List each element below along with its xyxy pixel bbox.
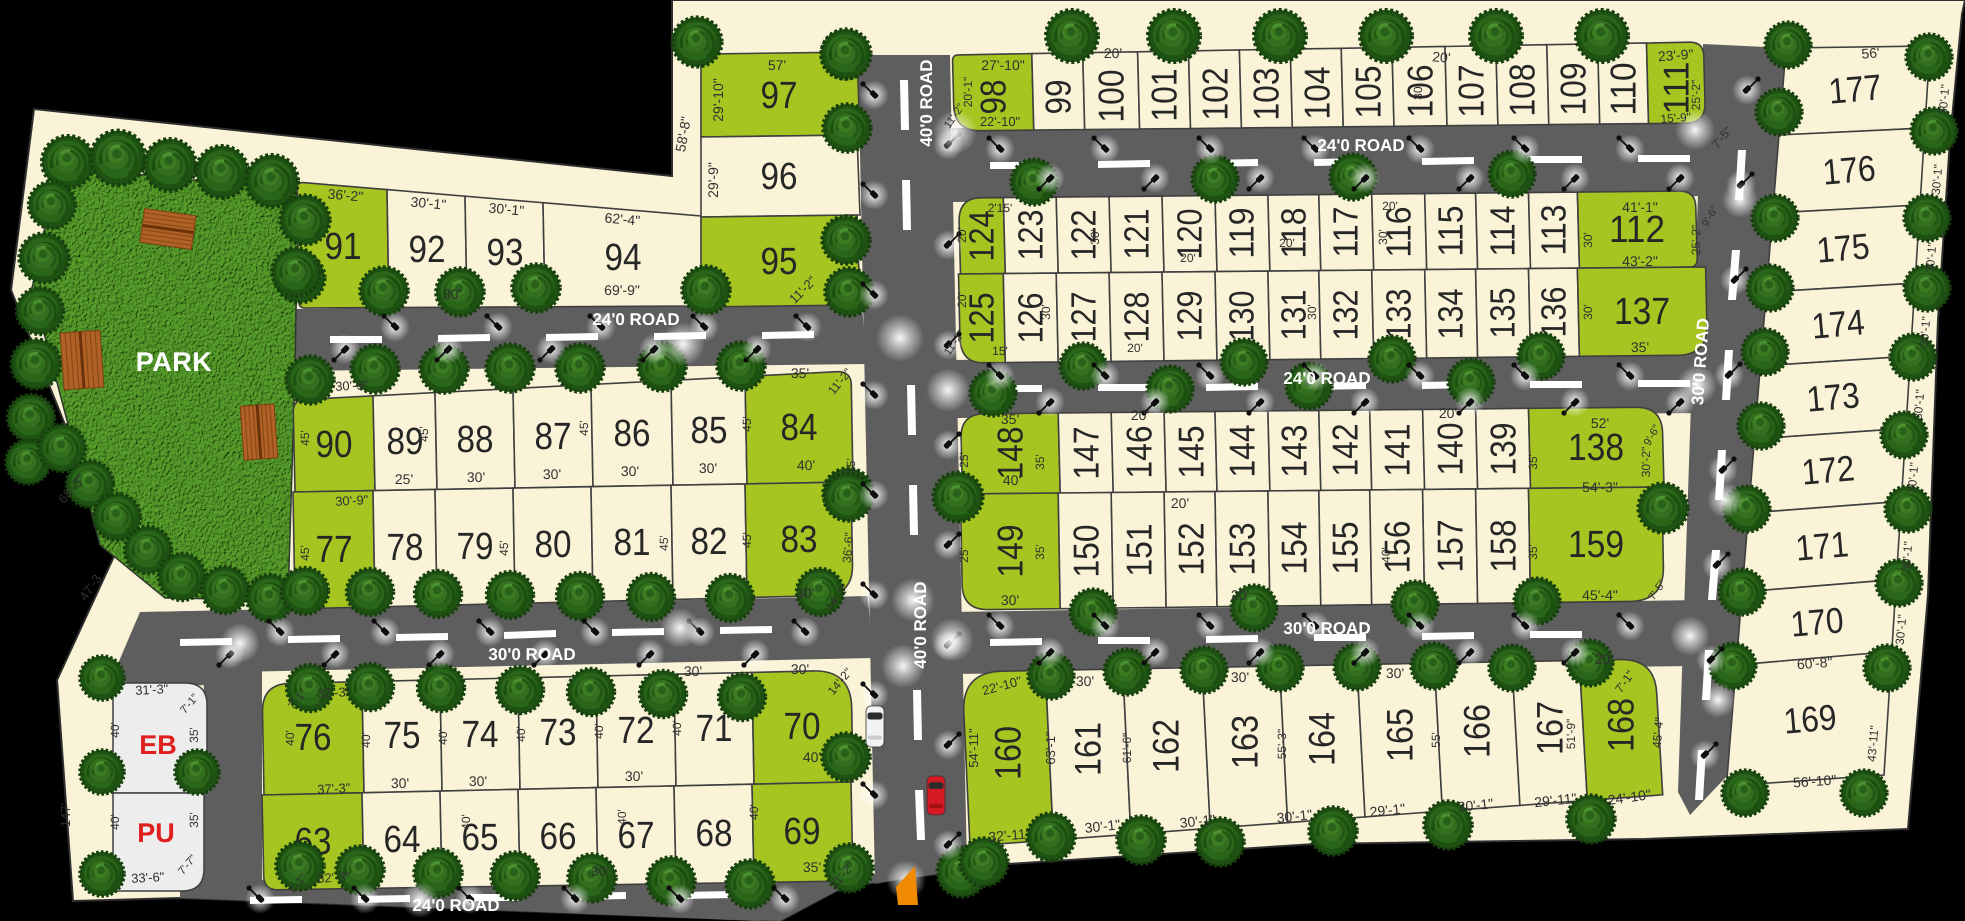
svg-text:45': 45' xyxy=(298,545,312,561)
svg-text:102: 102 xyxy=(1195,68,1236,121)
svg-text:156: 156 xyxy=(1377,521,1418,574)
svg-text:101: 101 xyxy=(1144,69,1185,122)
svg-text:83: 83 xyxy=(781,519,818,561)
svg-text:30': 30' xyxy=(796,585,814,601)
svg-text:36'-6": 36'-6" xyxy=(840,532,857,564)
svg-text:30': 30' xyxy=(625,768,643,784)
svg-text:130: 130 xyxy=(1223,291,1262,342)
svg-text:92: 92 xyxy=(409,229,446,271)
svg-text:20': 20' xyxy=(1382,199,1398,213)
svg-text:80: 80 xyxy=(535,524,572,566)
svg-text:64: 64 xyxy=(384,819,421,861)
svg-text:69: 69 xyxy=(784,811,821,853)
svg-text:176: 176 xyxy=(1821,147,1877,192)
svg-text:43'-2": 43'-2" xyxy=(1622,253,1658,269)
svg-text:95: 95 xyxy=(761,241,798,283)
svg-text:133: 133 xyxy=(1380,289,1419,340)
svg-text:22'-10": 22'-10" xyxy=(980,114,1021,129)
svg-text:117: 117 xyxy=(1327,207,1366,258)
svg-text:94: 94 xyxy=(605,237,642,279)
svg-text:145: 145 xyxy=(1171,426,1212,479)
svg-text:30': 30' xyxy=(684,663,702,679)
svg-text:20': 20' xyxy=(1595,651,1613,667)
svg-text:169: 169 xyxy=(1782,696,1838,741)
svg-text:24'0 ROAD: 24'0 ROAD xyxy=(412,896,499,915)
svg-text:35': 35' xyxy=(1526,544,1540,560)
svg-text:114: 114 xyxy=(1484,206,1523,257)
svg-text:144: 144 xyxy=(1222,425,1263,478)
svg-text:27'-10": 27'-10" xyxy=(981,57,1024,73)
svg-text:2'15': 2'15' xyxy=(988,201,1013,215)
svg-text:143: 143 xyxy=(1274,425,1315,478)
svg-text:30': 30' xyxy=(1231,669,1249,685)
svg-text:45': 45' xyxy=(740,532,754,548)
svg-text:45': 45' xyxy=(417,426,431,442)
svg-text:93: 93 xyxy=(487,232,524,274)
svg-text:139: 139 xyxy=(1483,423,1524,476)
svg-text:51'-9": 51'-9" xyxy=(1564,719,1578,750)
svg-text:30': 30' xyxy=(1039,304,1053,320)
svg-text:25': 25' xyxy=(957,547,971,563)
svg-text:40': 40' xyxy=(592,723,606,739)
svg-text:40': 40' xyxy=(1003,472,1021,488)
svg-text:30': 30' xyxy=(391,775,409,791)
svg-text:109: 109 xyxy=(1553,63,1594,116)
svg-text:24'0 ROAD: 24'0 ROAD xyxy=(1283,369,1370,388)
svg-text:45': 45' xyxy=(657,535,671,551)
svg-text:129: 129 xyxy=(1171,291,1210,342)
svg-text:40'0 ROAD: 40'0 ROAD xyxy=(911,581,930,668)
svg-text:30'-1": 30'-1" xyxy=(1905,462,1922,494)
svg-text:137: 137 xyxy=(1614,291,1670,333)
svg-text:25': 25' xyxy=(957,452,971,468)
svg-text:40': 40' xyxy=(108,814,122,830)
svg-text:20': 20' xyxy=(1231,587,1249,603)
svg-text:40': 40' xyxy=(359,732,373,748)
svg-text:118: 118 xyxy=(1275,208,1314,259)
svg-text:30'-2": 30'-2" xyxy=(1639,447,1653,478)
svg-text:105: 105 xyxy=(1348,66,1389,119)
svg-text:146: 146 xyxy=(1119,426,1160,479)
svg-text:136: 136 xyxy=(1535,287,1574,338)
svg-text:30'0 ROAD: 30'0 ROAD xyxy=(1283,619,1370,638)
svg-text:140: 140 xyxy=(1430,423,1471,476)
svg-text:25'-2": 25'-2" xyxy=(1689,80,1703,111)
svg-text:30': 30' xyxy=(1581,304,1595,320)
svg-text:35': 35' xyxy=(803,859,821,875)
svg-text:54'-11": 54'-11" xyxy=(966,728,981,768)
svg-text:174: 174 xyxy=(1810,301,1866,346)
svg-text:74: 74 xyxy=(462,714,499,756)
svg-text:77: 77 xyxy=(316,529,353,571)
svg-text:35': 35' xyxy=(844,458,858,474)
svg-text:30'-1": 30'-1" xyxy=(1936,84,1953,116)
svg-text:32'-3": 32'-3" xyxy=(317,869,351,886)
svg-text:35': 35' xyxy=(1526,454,1540,470)
svg-text:30': 30' xyxy=(1305,304,1319,320)
svg-text:35': 35' xyxy=(1033,454,1047,470)
svg-text:161: 161 xyxy=(1068,722,1109,776)
svg-text:30': 30' xyxy=(1386,665,1404,681)
svg-text:29'-9": 29'-9" xyxy=(705,162,721,198)
svg-text:154: 154 xyxy=(1274,522,1315,575)
svg-text:30': 30' xyxy=(591,863,609,879)
svg-text:87: 87 xyxy=(535,416,572,458)
svg-text:30'0 ROAD: 30'0 ROAD xyxy=(488,645,575,664)
svg-text:110: 110 xyxy=(1603,63,1644,116)
svg-text:40': 40' xyxy=(747,804,761,820)
svg-text:45': 45' xyxy=(298,430,312,446)
svg-text:164: 164 xyxy=(1302,712,1343,766)
svg-text:30'-1": 30'-1" xyxy=(410,193,447,212)
svg-text:123: 123 xyxy=(1012,210,1051,261)
svg-text:99: 99 xyxy=(1038,80,1079,115)
svg-text:150: 150 xyxy=(1066,525,1107,578)
svg-text:68: 68 xyxy=(696,813,733,855)
svg-text:20': 20' xyxy=(955,292,969,308)
svg-text:132: 132 xyxy=(1327,290,1366,341)
svg-text:171: 171 xyxy=(1794,523,1850,568)
svg-text:127: 127 xyxy=(1065,292,1104,343)
svg-text:81: 81 xyxy=(614,522,651,564)
svg-text:141: 141 xyxy=(1377,424,1418,477)
svg-text:147': 147' xyxy=(58,803,73,827)
svg-text:30'-1": 30'-1" xyxy=(1893,614,1910,646)
svg-text:20': 20' xyxy=(1131,407,1149,423)
svg-text:147: 147 xyxy=(1066,427,1107,480)
svg-text:35': 35' xyxy=(187,727,201,743)
svg-text:20': 20' xyxy=(1171,495,1189,511)
svg-text:155: 155 xyxy=(1325,522,1366,575)
svg-text:20'-1": 20'-1" xyxy=(961,77,975,108)
svg-text:86: 86 xyxy=(614,413,651,455)
svg-text:128: 128 xyxy=(1118,292,1157,343)
svg-text:173: 173 xyxy=(1805,374,1861,419)
svg-text:165: 165 xyxy=(1380,708,1421,762)
svg-text:112: 112 xyxy=(1609,209,1665,251)
svg-text:30'-9": 30'-9" xyxy=(335,377,369,394)
svg-text:96: 96 xyxy=(761,156,798,198)
svg-text:45'-4": 45'-4" xyxy=(1650,717,1667,749)
svg-text:35': 35' xyxy=(1033,544,1047,560)
svg-text:32'-3": 32'-3" xyxy=(317,684,351,701)
svg-text:166: 166 xyxy=(1457,704,1498,758)
svg-text:33'-6": 33'-6" xyxy=(131,869,165,886)
svg-text:153: 153 xyxy=(1222,523,1263,576)
svg-text:25'-2": 25'-2" xyxy=(1689,225,1703,256)
svg-text:73: 73 xyxy=(540,712,577,754)
svg-text:30': 30' xyxy=(467,469,485,485)
svg-text:30': 30' xyxy=(1376,229,1390,245)
svg-text:35': 35' xyxy=(187,812,201,828)
svg-text:60'-8": 60'-8" xyxy=(1796,654,1833,672)
svg-text:168: 168 xyxy=(1601,698,1642,752)
svg-text:30'-1": 30'-1" xyxy=(1923,242,1940,274)
svg-text:45': 45' xyxy=(740,416,754,432)
svg-text:20': 20' xyxy=(955,227,969,243)
svg-text:119: 119 xyxy=(1223,208,1262,259)
svg-text:40': 40' xyxy=(459,814,473,830)
svg-text:30': 30' xyxy=(1581,232,1595,248)
svg-text:30': 30' xyxy=(1411,84,1425,100)
svg-text:40': 40' xyxy=(1379,547,1393,563)
svg-text:55': 55' xyxy=(1429,732,1443,748)
svg-text:57': 57' xyxy=(768,57,786,73)
svg-text:23'-9": 23'-9" xyxy=(1657,46,1694,64)
svg-text:82: 82 xyxy=(691,521,728,563)
svg-text:30': 30' xyxy=(543,466,561,482)
svg-text:108: 108 xyxy=(1502,64,1543,117)
svg-text:30'-1": 30'-1" xyxy=(488,199,525,218)
svg-text:88: 88 xyxy=(457,419,494,461)
svg-text:30': 30' xyxy=(1088,229,1102,245)
svg-text:20': 20' xyxy=(1180,251,1196,265)
svg-text:40': 40' xyxy=(283,730,297,746)
svg-text:31'-3": 31'-3" xyxy=(135,681,169,698)
svg-text:30': 30' xyxy=(699,460,717,476)
svg-text:63'-1": 63'-1" xyxy=(1043,731,1058,765)
svg-text:142: 142 xyxy=(1325,424,1366,477)
svg-text:35': 35' xyxy=(1631,339,1649,355)
svg-text:151: 151 xyxy=(1119,524,1160,577)
svg-text:84: 84 xyxy=(781,407,818,449)
svg-text:100: 100 xyxy=(1091,70,1132,123)
svg-text:40': 40' xyxy=(797,457,815,473)
svg-text:103: 103 xyxy=(1246,68,1287,121)
svg-text:135: 135 xyxy=(1484,288,1523,339)
svg-text:159: 159 xyxy=(1568,524,1624,566)
svg-text:24'0 ROAD: 24'0 ROAD xyxy=(1317,136,1404,155)
svg-text:20': 20' xyxy=(1279,236,1295,250)
svg-text:30'-1": 30'-1" xyxy=(1911,389,1928,421)
svg-text:90: 90 xyxy=(316,424,353,466)
svg-text:62'-4": 62'-4" xyxy=(604,209,641,228)
svg-text:70: 70 xyxy=(784,706,821,748)
svg-text:EB: EB xyxy=(139,730,177,760)
svg-text:76: 76 xyxy=(295,717,332,759)
svg-text:30': 30' xyxy=(791,661,809,677)
svg-text:172: 172 xyxy=(1800,447,1856,492)
svg-text:29'-10": 29'-10" xyxy=(710,78,726,121)
svg-text:56'-10": 56'-10" xyxy=(1792,772,1836,791)
svg-text:30': 30' xyxy=(1001,592,1019,608)
svg-text:15'-9": 15'-9" xyxy=(1660,110,1691,126)
svg-text:20': 20' xyxy=(1127,341,1143,355)
svg-text:149: 149 xyxy=(990,525,1031,578)
svg-text:177: 177 xyxy=(1827,66,1883,111)
svg-text:35': 35' xyxy=(1001,411,1019,427)
svg-text:40'0 ROAD: 40'0 ROAD xyxy=(917,59,936,146)
svg-text:97: 97 xyxy=(761,75,798,117)
svg-text:20': 20' xyxy=(1104,45,1122,61)
svg-text:98: 98 xyxy=(973,80,1014,115)
svg-text:30'-1": 30'-1" xyxy=(1929,164,1946,196)
svg-text:138: 138 xyxy=(1568,427,1624,469)
svg-text:104: 104 xyxy=(1297,67,1338,120)
svg-text:40': 40' xyxy=(108,722,122,738)
svg-text:52': 52' xyxy=(1591,415,1609,431)
svg-text:69'-9": 69'-9" xyxy=(604,282,640,298)
svg-text:PARK: PARK xyxy=(136,347,213,377)
svg-text:24'0 ROAD: 24'0 ROAD xyxy=(592,310,679,329)
svg-text:35': 35' xyxy=(791,365,809,381)
svg-text:40': 40' xyxy=(436,729,450,745)
svg-text:45'-4": 45'-4" xyxy=(1582,587,1618,603)
svg-text:79: 79 xyxy=(457,526,494,568)
svg-text:40': 40' xyxy=(615,809,629,825)
svg-text:40': 40' xyxy=(803,749,821,765)
svg-text:25': 25' xyxy=(395,471,413,487)
svg-text:175: 175 xyxy=(1815,225,1871,270)
svg-text:55'-3": 55'-3" xyxy=(1275,729,1289,760)
svg-text:157: 157 xyxy=(1430,520,1471,573)
svg-text:36'-2": 36'-2" xyxy=(327,185,364,204)
svg-text:54'-3": 54'-3" xyxy=(1582,479,1618,495)
svg-text:30': 30' xyxy=(621,463,639,479)
svg-text:30'-9": 30'-9" xyxy=(335,492,369,509)
svg-text:45': 45' xyxy=(577,420,591,436)
svg-text:20': 20' xyxy=(1439,405,1457,421)
svg-text:PU: PU xyxy=(137,818,175,848)
svg-text:37'-3": 37'-3" xyxy=(317,780,351,797)
svg-text:72: 72 xyxy=(618,710,655,752)
svg-text:30'-1": 30'-1" xyxy=(1917,316,1934,348)
svg-text:91: 91 xyxy=(325,226,362,268)
svg-text:107: 107 xyxy=(1451,65,1492,118)
svg-text:40': 40' xyxy=(670,720,684,736)
svg-text:158: 158 xyxy=(1483,520,1524,573)
svg-text:56': 56' xyxy=(1861,44,1881,62)
svg-text:163: 163 xyxy=(1225,715,1266,769)
svg-text:78: 78 xyxy=(387,527,424,569)
svg-text:30': 30' xyxy=(469,773,487,789)
svg-text:15': 15' xyxy=(992,344,1008,358)
svg-text:66: 66 xyxy=(540,816,577,858)
svg-text:121: 121 xyxy=(1118,209,1157,260)
svg-text:20': 20' xyxy=(1432,48,1452,66)
svg-text:30': 30' xyxy=(443,286,461,302)
svg-text:40': 40' xyxy=(514,726,528,742)
svg-text:152: 152 xyxy=(1171,523,1212,576)
svg-text:45': 45' xyxy=(497,540,511,556)
svg-text:134: 134 xyxy=(1432,289,1471,340)
svg-text:30'-1": 30'-1" xyxy=(1899,541,1916,573)
svg-text:75: 75 xyxy=(384,715,421,757)
svg-text:160: 160 xyxy=(988,726,1029,780)
svg-text:61'-6": 61'-6" xyxy=(1120,733,1134,764)
svg-text:85: 85 xyxy=(691,410,728,452)
svg-text:115: 115 xyxy=(1432,206,1471,257)
svg-text:41'-1": 41'-1" xyxy=(1622,199,1658,215)
svg-text:170: 170 xyxy=(1789,599,1845,644)
svg-text:30': 30' xyxy=(1076,673,1094,689)
svg-text:162: 162 xyxy=(1146,719,1187,773)
svg-text:113: 113 xyxy=(1535,205,1574,256)
